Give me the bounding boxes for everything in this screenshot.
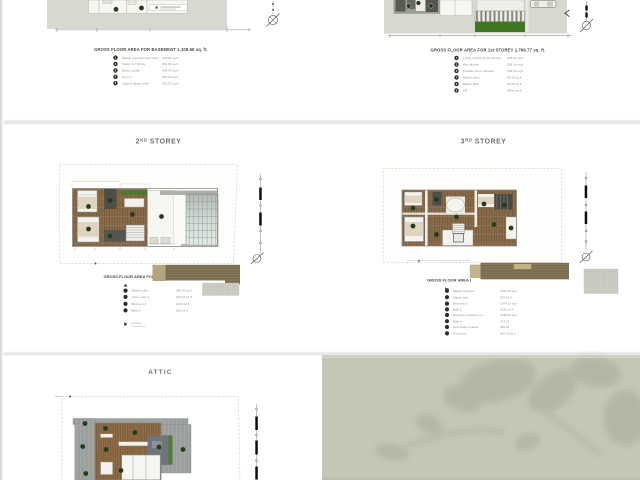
svg-text:Master bedroom: Master bedroom	[453, 289, 475, 293]
svg-text:Master suite: Master suite	[132, 289, 149, 293]
svg-text:Maid's room: Maid's room	[463, 76, 480, 80]
svg-text:50.25 sq ft: 50.25 sq ft	[507, 82, 522, 86]
svg-text:Bedroom 4 (tatami rm): Bedroom 4 (tatami rm)	[453, 313, 483, 317]
svg-text:Master bath: Master bath	[453, 295, 469, 299]
svg-text:Junior suite 1: Junior suite 1	[132, 295, 150, 299]
svg-text:Maid's bath: Maid's bath	[463, 82, 479, 86]
svg-text:Yoga & dance room: Yoga & dance room	[122, 81, 149, 85]
svg-text:GROSS FLOOR AREA FOR 1st STORE: GROSS FLOOR AREA FOR 1st STOREY 1,799.77…	[431, 48, 546, 53]
svg-text:380.42: 380.42	[500, 325, 510, 329]
svg-text:304.81 sq ft: 304.81 sq ft	[162, 62, 178, 66]
svg-text:Study rm / library: Study rm / library	[122, 62, 146, 66]
svg-text:303.19 sq ft: 303.19 sq ft	[162, 75, 178, 79]
svg-text:380.32 sq ft: 380.32 sq ft	[176, 289, 192, 293]
svg-text:89.19 sq ft: 89.19 sq ft	[507, 76, 522, 80]
svg-text:109.04 sq ft: 109.04 sq ft	[507, 69, 523, 73]
svg-text:Bath 2: Bath 2	[132, 309, 141, 313]
svg-text:1235.14 ft: 1235.14 ft	[500, 308, 514, 312]
svg-text:Dance studio: Dance studio	[122, 69, 140, 73]
svg-text:310.25 sq ft: 310.25 sq ft	[162, 81, 178, 85]
svg-text:Wet kitchen: Wet kitchen	[463, 63, 479, 67]
svg-text:Living / dining at the kitchen: Living / dining at the kitchen	[463, 56, 501, 60]
svg-text:Lift: Lift	[463, 89, 467, 93]
svg-text:318.01 sq ft: 318.01 sq ft	[162, 56, 178, 60]
svg-text:Bath 3: Bath 3	[453, 308, 462, 312]
svg-text:Family entertainment room: Family entertainment room	[122, 56, 159, 60]
svg-text:305.18 ft: 305.18 ft	[500, 295, 512, 299]
svg-text:Bedroom 3: Bedroom 3	[453, 302, 468, 306]
svg-text:309.04 sq ft: 309.04 sq ft	[162, 69, 178, 73]
svg-text:508.15 ft: 508.15 ft	[176, 309, 188, 313]
svg-text:GROSS FLOOR AREA FOR BASEMENT: GROSS FLOOR AREA FOR BASEMENT 1,108.65 s…	[94, 47, 208, 52]
svg-text:26.04 sq ft: 26.04 sq ft	[507, 89, 522, 93]
svg-text:Powder room / shower: Powder room / shower	[463, 69, 494, 73]
svg-text:1593.18 sq ft: 1593.18 sq ft	[500, 289, 518, 293]
svg-text:206.24 sq ft: 206.24 sq ft	[507, 63, 523, 67]
svg-text:Hers walk-in closet: Hers walk-in closet	[453, 325, 478, 329]
svg-text:Bedroom 2: Bedroom 2	[132, 302, 147, 306]
svg-text:Bath 4: Bath 4	[453, 319, 462, 323]
svg-text:His closet: His closet	[453, 332, 466, 336]
svg-text:Gym 1: Gym 1	[122, 75, 131, 79]
svg-text:374.15: 374.15	[500, 319, 510, 323]
svg-text:ATTIC: ATTIC	[148, 369, 173, 376]
svg-text:302.19 sq ft: 302.19 sq ft	[500, 332, 516, 336]
svg-text:1064.42 ft: 1064.42 ft	[176, 302, 190, 306]
svg-text:206.24 sq ft: 206.24 sq ft	[176, 295, 192, 299]
svg-text:1264.15 sq ft: 1264.15 sq ft	[500, 302, 518, 306]
svg-text:805.32 sq ft: 805.32 sq ft	[507, 56, 523, 60]
svg-text:1038.62 sq ft: 1038.62 sq ft	[500, 313, 518, 317]
